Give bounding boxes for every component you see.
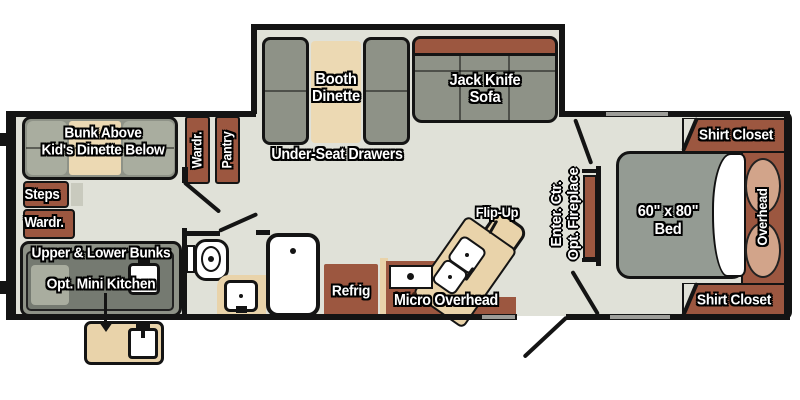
callout-arrow-line: [104, 293, 107, 323]
window-bottom-kitchen: [482, 315, 515, 319]
booth-label-1: Booth: [315, 71, 356, 89]
window-top: [606, 112, 668, 116]
under-seat-label: Under-Seat Drawers: [271, 146, 402, 164]
micro-overhead-label: Micro Overhead: [394, 292, 498, 310]
hall-wardrobe-label: Wardr.: [190, 132, 205, 169]
overhead-label: Overhead: [754, 188, 770, 245]
steps-landing: [71, 183, 83, 206]
ent-cap-bottom: [582, 258, 598, 262]
bath-wall-divider: [182, 228, 187, 316]
window-bottom-bedroom: [610, 315, 670, 319]
sink-drain-1: [465, 253, 469, 257]
refrigerator-label: Refrig: [332, 283, 370, 300]
fireplace-cabinet: [583, 175, 597, 259]
toilet-drain: [208, 256, 214, 262]
bed-label-2: Bed: [655, 221, 682, 239]
sofa-label-1: Jack Knife: [450, 72, 521, 90]
bunks-label-1: Upper & Lower Bunks: [32, 245, 171, 262]
entertainment-label: Enter. Ctr. Opt. Fireplace: [549, 129, 583, 299]
entertainment-label-2: Opt. Fireplace: [566, 129, 583, 299]
flip-up-label: Flip-Up: [476, 204, 518, 220]
ent-cap-top: [582, 169, 598, 173]
steps-label: Steps: [25, 187, 60, 203]
bath-wall-top: [182, 231, 220, 236]
entry-door-swing: [522, 316, 568, 359]
slideout-wall-right: [559, 24, 565, 114]
shower: [266, 233, 320, 317]
bed-label-1: 60" x 80": [638, 203, 699, 221]
shower-head: [290, 248, 296, 254]
sink-drain-2: [448, 275, 452, 279]
bath-sink-drain: [239, 294, 243, 298]
rear-bumper-top: [0, 133, 8, 146]
callout-arrow-head: [99, 322, 113, 332]
detail-sink-faucet-stem: [141, 330, 145, 338]
bunk-dinette-label-1: Bunk Above: [64, 125, 141, 142]
entertainment-label-1: Enter. Ctr.: [549, 129, 566, 299]
booth-seam-left: [265, 90, 306, 92]
bed-comforter: [712, 153, 746, 277]
rear-wardrobe-label: Wardr.: [24, 215, 63, 231]
shower-wall-stub: [256, 230, 270, 235]
detail-sink-faucet: [136, 323, 150, 330]
rear-bumper-bottom: [0, 281, 8, 294]
slideout-wall-left: [251, 24, 257, 114]
shirt-closet-top-label: Shirt Closet: [699, 127, 773, 144]
bunk-dinette-label-2: Kid's Dinette Below: [41, 142, 164, 159]
pantry-label: Pantry: [220, 131, 235, 168]
exterior-wall-front: [784, 111, 792, 320]
booth-label-2: Dinette: [312, 88, 360, 106]
bath-faucet: [236, 306, 247, 313]
rv-floorplan: Bunk Above Kid's Dinette Below Steps War…: [0, 0, 800, 400]
bunks-label-2: Opt. Mini Kitchen: [47, 276, 156, 293]
exterior-wall-top-right: [559, 111, 790, 117]
shirt-closet-bottom-label: Shirt Closet: [697, 292, 771, 309]
cooktop-burner: [407, 273, 414, 280]
exterior-wall-top-left: [14, 111, 256, 117]
tv-wall: [596, 166, 601, 266]
slideout-wall-top: [251, 24, 565, 30]
exterior-wall-bottom-right: [566, 314, 790, 320]
booth-seam-right: [366, 90, 407, 92]
sofa-label-2: Sofa: [470, 89, 501, 107]
exterior-wall-bottom-left: [14, 314, 517, 320]
